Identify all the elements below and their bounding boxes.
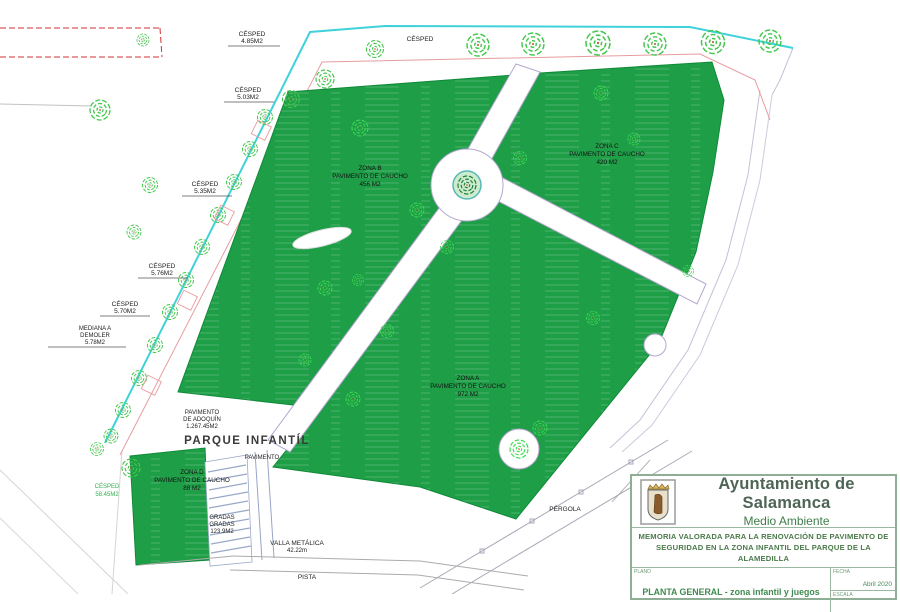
- zone-d-area: [130, 448, 210, 565]
- zone-b-line1: ZONA B: [358, 165, 381, 172]
- path-junction-circle: [644, 334, 666, 356]
- zone-a-line2: PAVIMENTO DE CAUCHO: [430, 383, 506, 390]
- tree-icon: [116, 403, 131, 418]
- tree-icon: [227, 175, 242, 190]
- pergola-label: PÉRGOLA: [549, 504, 581, 513]
- tree-icon: [127, 225, 141, 239]
- cesped5-name: CÉSPED: [112, 299, 139, 308]
- cesped1-name: CÉSPED: [239, 29, 266, 38]
- tree-icon: [759, 30, 781, 52]
- project-description-line2: SEGURIDAD EN LA ZONA INFANTIL DEL PARQUE…: [634, 542, 893, 564]
- fecha-field-label: FECHA: [833, 569, 850, 575]
- drawing-title-cell: PLANO PLANTA GENERAL - zona infantil y j…: [632, 568, 831, 612]
- escala-field-label: ESCALA: [833, 592, 853, 598]
- zone-d-line2: PAVIMENTO DE CAUCHO: [154, 477, 230, 484]
- cesped-green-area: 58.45M2: [95, 492, 119, 498]
- adoquin-line2: DE ADOQUÍN: [183, 416, 221, 423]
- date-cell: FECHA Abril 2020: [831, 568, 895, 591]
- zone-c-line1: ZONA C: [595, 143, 619, 150]
- cesped5-area: 5.70M2: [114, 308, 136, 315]
- salamanca-shield-icon: [640, 479, 676, 525]
- valla-line2: 42.22m: [287, 548, 307, 554]
- stairs-gradas: [205, 450, 274, 566]
- tree-icon: [586, 31, 610, 55]
- title-block: Ayuntamiento de Salamanca Medio Ambiente…: [630, 474, 897, 600]
- adoquin-line1: PAVIMENTO: [185, 410, 220, 416]
- department-name: Medio Ambiente: [682, 514, 891, 528]
- date-value: Abril 2020: [863, 581, 892, 588]
- tree-icon: [644, 33, 666, 55]
- red-dashed-zone: [0, 28, 162, 57]
- title-block-header: Ayuntamiento de Salamanca Medio Ambiente: [632, 476, 895, 528]
- pista-label: PISTA: [298, 574, 317, 581]
- valla-label: VALLA METÁLICA 42.22m: [270, 538, 324, 554]
- tree-icon: [522, 33, 544, 55]
- tree-icon: [90, 100, 110, 120]
- zone-a-line3: 972 M2: [457, 391, 479, 398]
- cesped-top-label: CÉSPED: [407, 34, 434, 43]
- cesped4-name: CÉSPED: [149, 261, 176, 270]
- zone-a-line1: ZONA A: [457, 375, 481, 382]
- adoquin-label: PAVIMENTO DE ADOQUÍN 1.267.45M2: [183, 410, 221, 430]
- mediana-line3: 5.78M2: [85, 340, 106, 346]
- tree-icon: [316, 70, 334, 88]
- parque-infantil-title: PARQUE INFANTÍL: [184, 434, 310, 447]
- tree-icon: [148, 338, 163, 353]
- adoquin-line3: 1.267.45M2: [186, 424, 218, 430]
- zone-d-line3: 88 M2: [183, 485, 201, 492]
- zone-b-line2: PAVIMENTO DE CAUCHO: [332, 173, 408, 180]
- cesped2-name: CÉSPED: [235, 85, 262, 94]
- drawing-title: PLANTA GENERAL - zona infantil y juegos: [642, 583, 819, 597]
- tree-icon: [143, 178, 158, 193]
- tree-icon: [195, 240, 210, 255]
- valla-line1: VALLA METÁLICA: [270, 538, 324, 547]
- tree-icon: [91, 443, 104, 456]
- mediana-line2: DEMOLER: [80, 333, 110, 339]
- tree-icon: [367, 41, 384, 58]
- gradas-label: GRADAS GRADAS 123.9M2: [209, 515, 234, 535]
- cesped-green-name: CÉSPED: [95, 483, 120, 490]
- zone-b-line3: 456 M2: [359, 181, 381, 188]
- zone-d-line1: ZONA D: [180, 469, 204, 476]
- tree-icon: [104, 429, 118, 443]
- cesped3-name: CÉSPED: [192, 179, 219, 188]
- cesped4-area: 5.76M2: [151, 270, 173, 277]
- project-description: MEMORIA VALORADA PARA LA RENOVACIÓN DE P…: [632, 528, 895, 568]
- tree-icon: [179, 273, 194, 288]
- pavimento-label: PAVIMENTO: [245, 455, 280, 461]
- gradas-line1: GRADAS: [209, 515, 234, 521]
- gradas-line3: 123.9M2: [210, 529, 234, 535]
- tree-icon: [467, 34, 489, 56]
- cesped3-area: 5.35M2: [194, 188, 216, 195]
- plano-field-label: PLANO: [634, 569, 651, 575]
- gradas-line2: GRADAS: [209, 522, 234, 528]
- cad-drawing-canvas: CÉSPED CÉSPED 4.85M2 CÉSPED 5.03M2 CÉSPE…: [0, 0, 900, 594]
- org-name: Ayuntamiento de Salamanca: [682, 475, 891, 513]
- zone-c-line2: PAVIMENTO DE CAUCHO: [569, 151, 645, 158]
- zone-c-line3: 420 M2: [596, 159, 618, 166]
- tree-icon: [137, 34, 149, 46]
- project-description-line1: MEMORIA VALORADA PARA LA RENOVACIÓN DE P…: [634, 531, 893, 542]
- mediana-label: MEDIANA A DEMOLER 5.78M2: [48, 326, 126, 347]
- cesped2-area: 5.03M2: [237, 94, 259, 101]
- mediana-line1: MEDIANA A: [79, 326, 111, 332]
- cesped1-area: 4.85M2: [241, 38, 263, 45]
- tree-icon: [163, 305, 178, 320]
